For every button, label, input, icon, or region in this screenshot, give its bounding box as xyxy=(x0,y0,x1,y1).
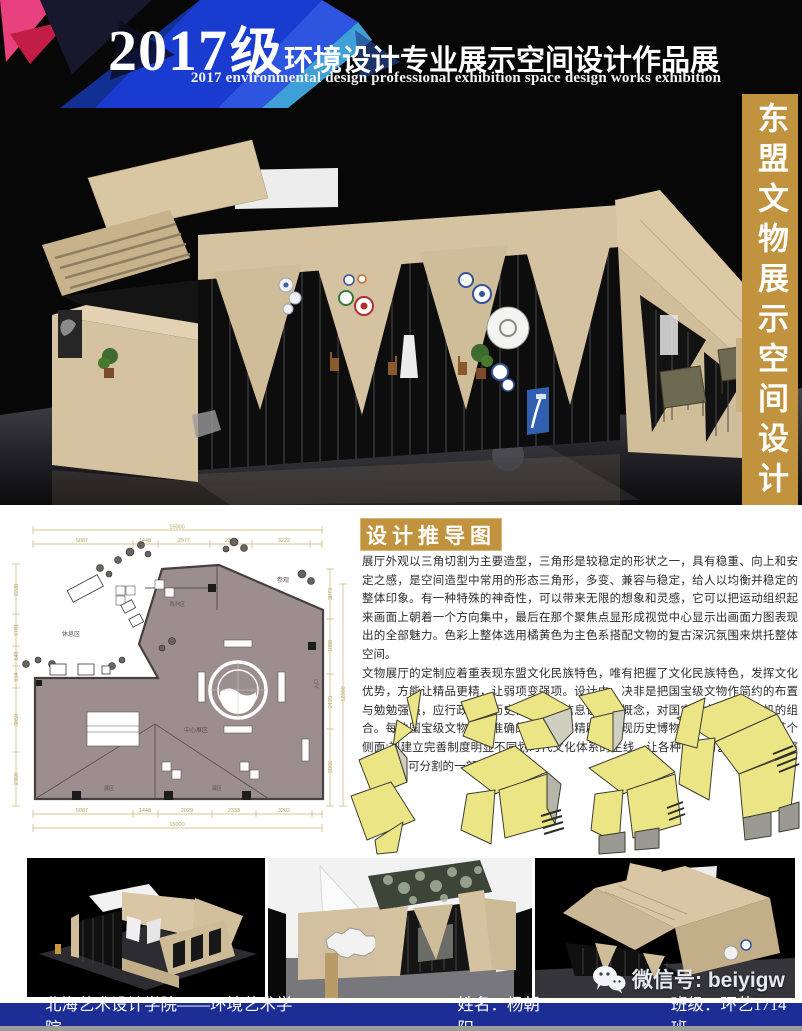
bottom-gray-strip xyxy=(0,1026,802,1031)
svg-text:15000: 15000 xyxy=(169,525,184,531)
footer-class: 班级：环艺1714班 xyxy=(671,991,802,1031)
svg-text:陈列区: 陈列区 xyxy=(170,601,185,608)
sketch-step-6 xyxy=(461,746,564,844)
svg-text:15000: 15000 xyxy=(169,822,184,828)
sketch-step-5 xyxy=(351,744,415,854)
sketch-step-8 xyxy=(675,694,799,840)
svg-text:入口: 入口 xyxy=(314,679,320,689)
svg-text:2368: 2368 xyxy=(14,773,20,785)
top-black-zone: 2017级环境设计专业展示空间设计作品展 2017 environmental … xyxy=(0,0,802,505)
blue-banner xyxy=(527,387,549,435)
svg-text:5087: 5087 xyxy=(76,538,88,544)
svg-text:2333: 2333 xyxy=(228,808,240,814)
svg-text:2123: 2123 xyxy=(328,696,334,708)
description-paragraph-1: 展厅外观以三角切割为主要造型，三角形是较稳定的形状之一，具有稳重、向上和安定之感… xyxy=(362,553,798,665)
svg-text:展区: 展区 xyxy=(104,786,114,792)
central-round-stage xyxy=(210,662,266,718)
svg-text:3222: 3222 xyxy=(278,538,290,544)
svg-text:3050: 3050 xyxy=(14,714,20,726)
sketch-step-1 xyxy=(393,690,421,746)
svg-text:914: 914 xyxy=(14,672,20,681)
floor-plan: 15000 5087 1448 2977 2346 3222 5087 1448… xyxy=(12,524,357,851)
sketch-step-4 xyxy=(579,688,625,752)
side-vertical-banner: 东盟文物展示空间设计 xyxy=(742,94,798,505)
svg-text:2977: 2977 xyxy=(178,538,190,544)
render-panel-front xyxy=(268,858,532,998)
svg-text:休息区: 休息区 xyxy=(62,630,80,638)
svg-text:参观: 参观 xyxy=(277,576,289,584)
main-exhibition-render xyxy=(0,110,802,505)
svg-text:1448: 1448 xyxy=(139,808,151,814)
side-vertical-title: 东盟文物展示空间设计 xyxy=(742,102,798,502)
svg-text:848: 848 xyxy=(14,651,20,660)
svg-text:3202: 3202 xyxy=(278,808,290,814)
hanging-scroll xyxy=(325,953,338,998)
sketch-step-7 xyxy=(589,746,685,854)
wechat-id-text: 微信号: beiyigw xyxy=(632,964,785,994)
footer-name: 姓名：杨朝阳 xyxy=(457,991,555,1031)
wechat-icon xyxy=(592,964,626,994)
sketch-step-3 xyxy=(505,692,573,750)
sketch-step-2 xyxy=(461,692,499,748)
footer-school: 北海艺术设计学院——环境艺术学院 xyxy=(45,991,307,1031)
svg-text:5087: 5087 xyxy=(76,808,88,814)
svg-text:展区: 展区 xyxy=(212,786,222,792)
render-panel-aerial xyxy=(27,858,265,997)
svg-text:2220: 2220 xyxy=(14,584,20,596)
massing-sketch-sequence xyxy=(345,688,802,861)
svg-text:2066: 2066 xyxy=(328,761,334,773)
poster: 2017级环境设计专业展示空间设计作品展 2017 environmental … xyxy=(0,0,802,1031)
footer-bar: 北海艺术设计学院——环境艺术学院 姓名：杨朝阳 班级：环艺1714班 xyxy=(0,1001,802,1026)
svg-text:1781: 1781 xyxy=(14,624,20,636)
page-subtitle-english: 2017 environmental design professional e… xyxy=(150,70,762,87)
svg-text:3073: 3073 xyxy=(328,588,334,600)
svg-text:2029: 2029 xyxy=(181,808,193,814)
svg-text:中心展区: 中心展区 xyxy=(184,726,208,734)
svg-text:1008: 1008 xyxy=(328,640,334,652)
section-title-box: 设计推导图 xyxy=(360,518,502,551)
wechat-watermark: 微信号: beiyigw xyxy=(592,964,785,994)
